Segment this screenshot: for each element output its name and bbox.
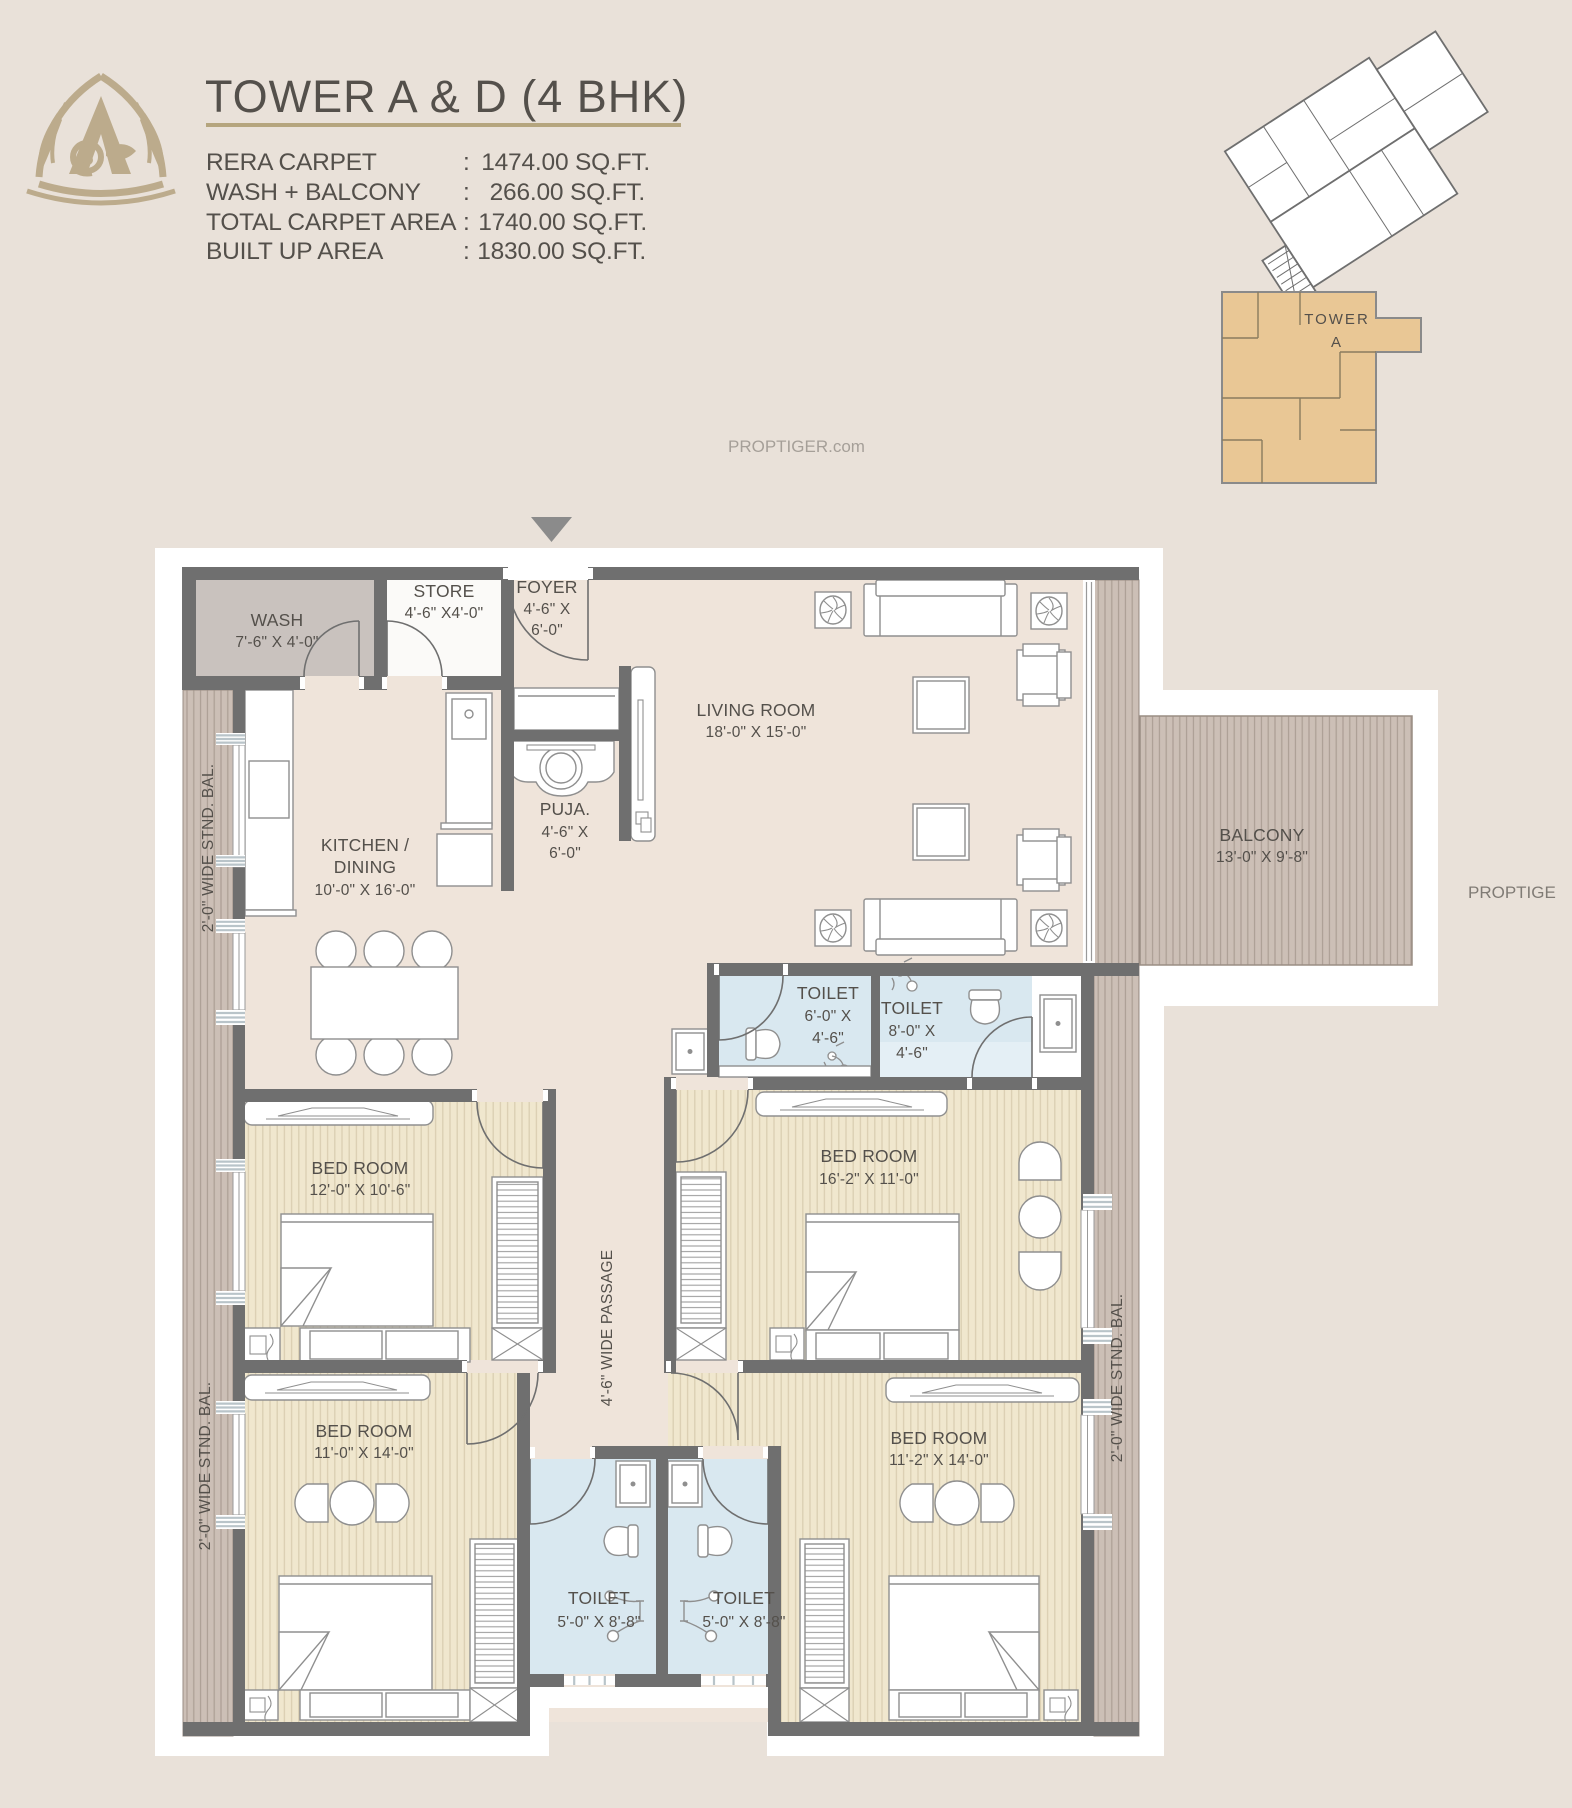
svg-text:TOILET: TOILET xyxy=(568,1588,630,1608)
svg-text:PROPTIGER.com: PROPTIGER.com xyxy=(728,437,865,456)
svg-text:13'-0" X 9'-8": 13'-0" X 9'-8" xyxy=(1216,849,1308,866)
svg-text:TOWER: TOWER xyxy=(1304,311,1370,328)
svg-text:BED ROOM: BED ROOM xyxy=(821,1146,918,1166)
svg-text:WASH + BALCONY: WASH + BALCONY xyxy=(206,179,421,206)
svg-text:11'-0" X 14'-0": 11'-0" X 14'-0" xyxy=(314,1445,414,1462)
svg-text:6'-0": 6'-0" xyxy=(531,622,563,639)
svg-text:TOILET: TOILET xyxy=(797,983,859,1003)
svg-text:5'-0" X 8'-8": 5'-0" X 8'-8" xyxy=(557,1614,640,1631)
svg-text:BUILT UP AREA: BUILT UP AREA xyxy=(206,238,384,265)
svg-text:WASH: WASH xyxy=(251,610,304,630)
svg-text:FOYER: FOYER xyxy=(516,577,577,597)
svg-text:7'-6" X 4'-0": 7'-6" X 4'-0" xyxy=(235,634,318,651)
svg-text:TOILET: TOILET xyxy=(713,1588,775,1608)
svg-text:11'-2" X 14'-0": 11'-2" X 14'-0" xyxy=(889,1452,989,1469)
svg-text:8'-0" X: 8'-0" X xyxy=(889,1023,936,1040)
svg-text:18'-0" X 15'-0": 18'-0" X 15'-0" xyxy=(706,724,807,741)
svg-text:BALCONY: BALCONY xyxy=(1219,825,1304,845)
svg-text:PUJA.: PUJA. xyxy=(540,799,591,819)
svg-text:BED ROOM: BED ROOM xyxy=(891,1428,988,1448)
svg-text:10'-0" X 16'-0": 10'-0" X 16'-0" xyxy=(315,882,416,899)
svg-text:1474.00 SQ.FT.: 1474.00 SQ.FT. xyxy=(481,149,650,176)
svg-text:6'-0" X: 6'-0" X xyxy=(805,1008,852,1025)
svg-text:TOTAL CARPET AREA: TOTAL CARPET AREA xyxy=(206,209,457,236)
svg-text:2'-0" WIDE STND. BAL.: 2'-0" WIDE STND. BAL. xyxy=(200,764,217,933)
svg-text:DINING: DINING xyxy=(334,857,396,877)
svg-text:BED ROOM: BED ROOM xyxy=(312,1158,409,1178)
svg-text:2'-0" WIDE STND. BAL.: 2'-0" WIDE STND. BAL. xyxy=(197,1382,214,1551)
svg-text:1740.00 SQ.FT.: 1740.00 SQ.FT. xyxy=(478,209,647,236)
svg-text::: : xyxy=(463,238,470,265)
svg-text:KITCHEN /: KITCHEN / xyxy=(321,835,409,855)
svg-text::: : xyxy=(463,149,470,176)
svg-text:4'-6" X: 4'-6" X xyxy=(542,824,589,841)
svg-text:4'-6" X: 4'-6" X xyxy=(524,601,571,618)
svg-text:TOILET: TOILET xyxy=(881,998,943,1018)
svg-text:RERA CARPET: RERA CARPET xyxy=(206,149,377,176)
svg-text:4'-6": 4'-6" xyxy=(896,1045,928,1062)
svg-text:6'-0": 6'-0" xyxy=(549,845,581,862)
svg-text:LIVING ROOM: LIVING ROOM xyxy=(697,700,816,720)
svg-text:STORE: STORE xyxy=(414,581,475,601)
svg-text:4'-6" X4'-0": 4'-6" X4'-0" xyxy=(405,605,484,622)
svg-text:4'-6" WIDE PASSAGE: 4'-6" WIDE PASSAGE xyxy=(599,1250,616,1406)
svg-text:12'-0" X 10'-6": 12'-0" X 10'-6" xyxy=(310,1182,411,1199)
svg-text:266.00 SQ.FT.: 266.00 SQ.FT. xyxy=(490,179,645,206)
svg-text:PROPTIGE: PROPTIGE xyxy=(1468,883,1556,902)
svg-text::: : xyxy=(463,209,470,236)
svg-text:16'-2" X 11'-0": 16'-2" X 11'-0" xyxy=(819,1171,919,1188)
svg-text:2'-0" WIDE STND. BAL.: 2'-0" WIDE STND. BAL. xyxy=(1109,1294,1126,1463)
svg-text:5'-0" X 8'-8": 5'-0" X 8'-8" xyxy=(702,1614,785,1631)
svg-text:TOWER A & D (4 BHK): TOWER A & D (4 BHK) xyxy=(205,71,688,122)
svg-text:A: A xyxy=(1331,334,1343,351)
svg-text:1830.00 SQ.FT.: 1830.00 SQ.FT. xyxy=(477,238,646,265)
svg-text:4'-6": 4'-6" xyxy=(812,1030,844,1047)
svg-text:BED ROOM: BED ROOM xyxy=(316,1421,413,1441)
svg-text::: : xyxy=(463,179,470,206)
